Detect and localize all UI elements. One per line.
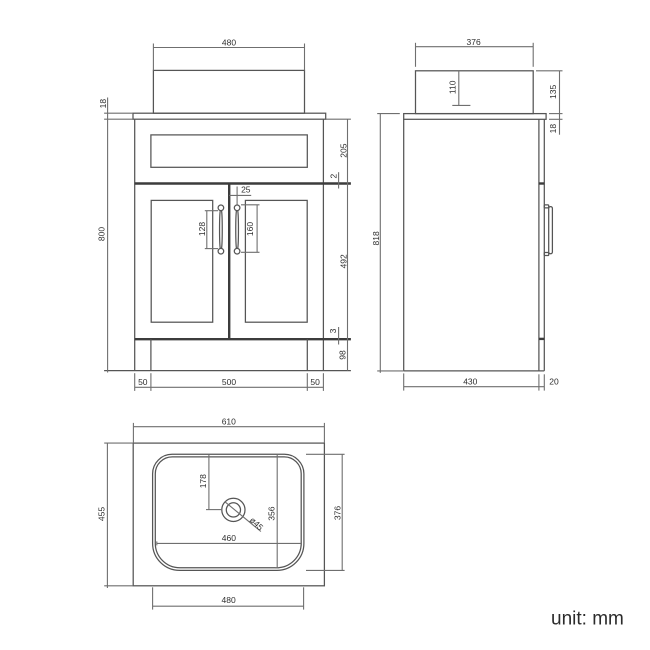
svg-text:800: 800 <box>97 227 107 241</box>
svg-text:160: 160 <box>245 222 255 236</box>
svg-text:2: 2 <box>329 173 339 178</box>
svg-text:18: 18 <box>98 99 108 109</box>
svg-text:135: 135 <box>548 85 558 99</box>
svg-text:unit: mm: unit: mm <box>551 608 624 629</box>
svg-text:492: 492 <box>338 254 348 268</box>
svg-text:480: 480 <box>222 37 236 47</box>
svg-text:500: 500 <box>222 377 236 387</box>
svg-text:3: 3 <box>328 328 338 333</box>
svg-text:460: 460 <box>222 533 236 543</box>
svg-text:376: 376 <box>467 37 481 47</box>
svg-text:50: 50 <box>138 377 148 387</box>
svg-text:110: 110 <box>448 80 458 94</box>
svg-text:205: 205 <box>338 143 348 157</box>
svg-text:818: 818 <box>371 231 381 245</box>
svg-text:50: 50 <box>310 377 320 387</box>
svg-text:356: 356 <box>267 506 277 520</box>
svg-text:ø45: ø45 <box>248 515 266 532</box>
svg-text:430: 430 <box>463 377 477 387</box>
svg-text:455: 455 <box>97 507 107 521</box>
svg-text:98: 98 <box>338 350 348 360</box>
svg-text:376: 376 <box>332 506 342 520</box>
svg-text:178: 178 <box>198 474 208 488</box>
svg-text:128: 128 <box>197 222 207 236</box>
svg-text:20: 20 <box>549 377 559 387</box>
svg-text:610: 610 <box>222 417 236 427</box>
svg-text:25: 25 <box>241 185 251 195</box>
svg-text:480: 480 <box>222 595 236 605</box>
svg-text:18: 18 <box>548 124 558 134</box>
